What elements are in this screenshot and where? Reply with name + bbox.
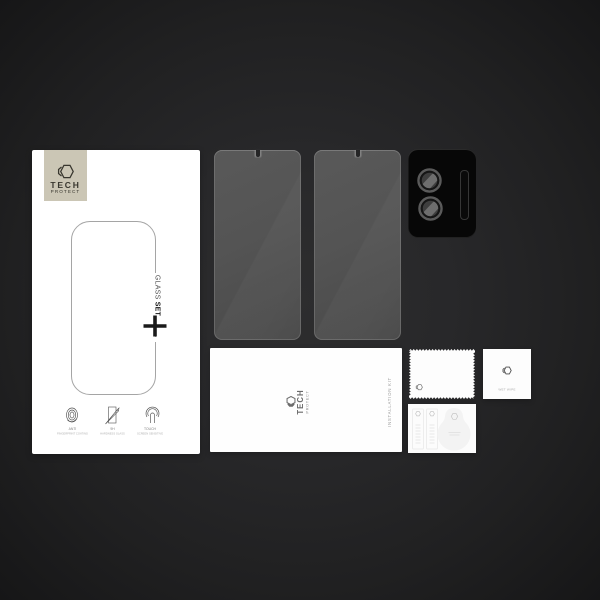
svg-text:FINGERPRINT COATING: FINGERPRINT COATING — [57, 432, 88, 436]
svg-text:PROTECT: PROTECT — [305, 390, 309, 413]
svg-text:WET WIPE: WET WIPE — [498, 388, 515, 392]
svg-text:HARDNESS GLASS: HARDNESS GLASS — [100, 432, 125, 436]
svg-text:ANTI: ANTI — [69, 427, 77, 431]
svg-text:SCREEN SENSITIVE: SCREEN SENSITIVE — [137, 432, 163, 436]
svg-text:TECH: TECH — [296, 389, 305, 414]
svg-text:TOUCH: TOUCH — [144, 427, 157, 431]
svg-text:INSTALLATION KIT: INSTALLATION KIT — [387, 377, 392, 427]
svg-text:9H: 9H — [110, 427, 115, 431]
